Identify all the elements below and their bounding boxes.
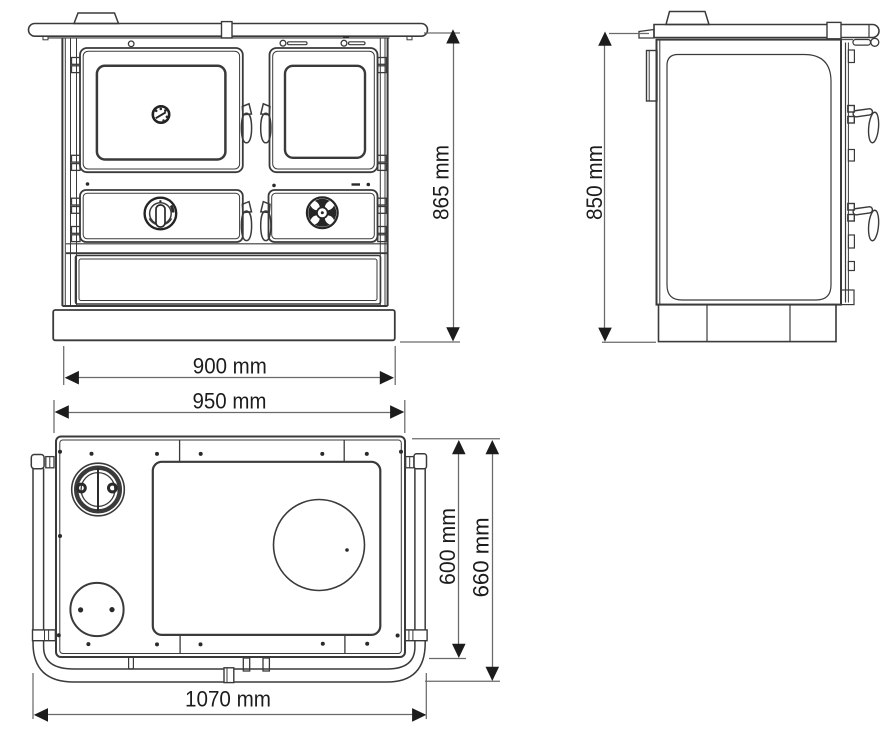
svg-text:850 mm: 850 mm: [582, 145, 607, 220]
svg-text:600 mm: 600 mm: [435, 508, 460, 585]
svg-text:1070 mm: 1070 mm: [185, 687, 271, 712]
svg-text:950 mm: 950 mm: [193, 389, 267, 414]
svg-text:660 mm: 660 mm: [469, 517, 494, 597]
svg-text:900 mm: 900 mm: [193, 354, 267, 379]
svg-text:865 mm: 865 mm: [429, 145, 454, 220]
